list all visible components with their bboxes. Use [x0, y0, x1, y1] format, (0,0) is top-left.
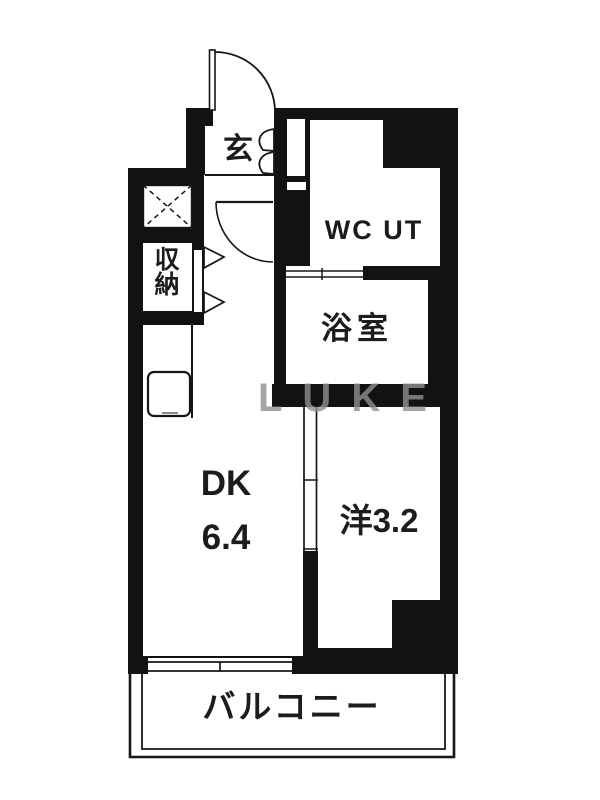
label-dk: DK — [171, 466, 281, 503]
hallway — [204, 175, 274, 325]
room-western — [318, 600, 392, 648]
wall — [363, 266, 440, 280]
partition-opening — [303, 407, 318, 551]
label-genkan: 玄 — [206, 134, 270, 166]
dk-balcony-window — [148, 658, 292, 674]
floor-plan-image: 玄 WC UT 浴室 収納 DK 6.4 洋3.2 バルコニー LUKE — [0, 0, 600, 800]
watermark: LUKE — [258, 376, 447, 421]
wall — [383, 120, 440, 168]
wall — [274, 270, 286, 386]
label-western: 洋3.2 — [318, 504, 440, 539]
room-dk — [145, 325, 274, 384]
room-dk — [145, 384, 272, 407]
label-storage: 収納 — [152, 246, 177, 316]
wall — [318, 648, 458, 674]
wall-niche — [287, 119, 305, 176]
wall — [141, 228, 192, 243]
closet-door-track — [194, 250, 202, 312]
floor-plan: 玄 WC UT 浴室 収納 DK 6.4 洋3.2 バルコニー LUKE — [0, 0, 600, 800]
wall — [303, 551, 318, 656]
wall — [392, 600, 442, 648]
label-dk-size: 6.4 — [171, 520, 281, 557]
label-balcony: バルコニー — [137, 690, 447, 725]
label-bath: 浴室 — [286, 313, 428, 346]
wall — [128, 185, 143, 673]
bath-sliding-door — [286, 266, 363, 280]
label-wc-ut: WC UT — [308, 216, 440, 244]
entrance-door-icon — [210, 50, 276, 112]
wall — [428, 280, 440, 384]
shaft-hatch-area — [143, 185, 192, 228]
wall-niche — [287, 182, 306, 190]
